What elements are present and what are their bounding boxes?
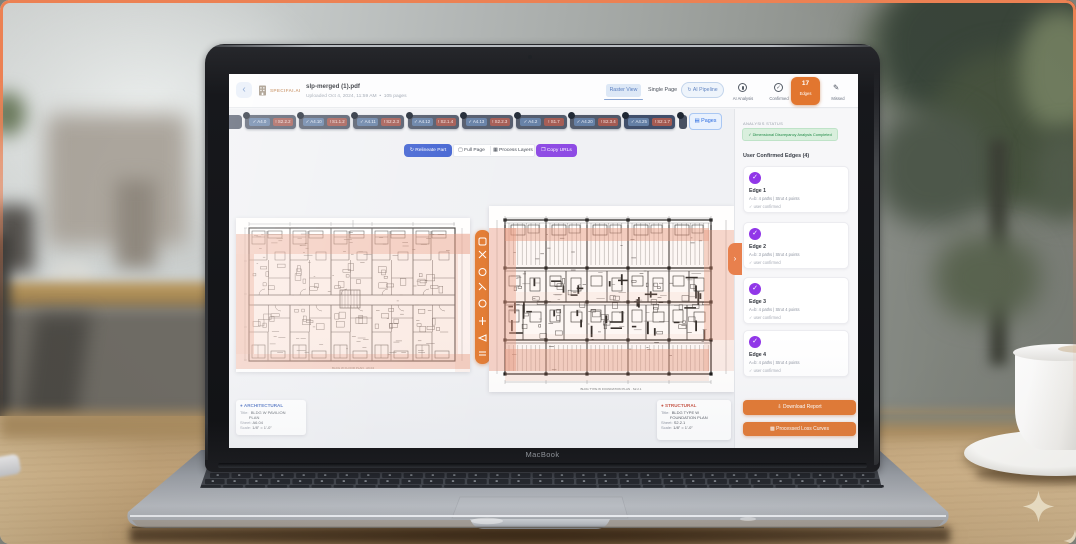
svg-text:BLDG TYPE W FOUNDATION PLAN ·: BLDG TYPE W FOUNDATION PLAN · S2.2.1 [581,387,642,391]
